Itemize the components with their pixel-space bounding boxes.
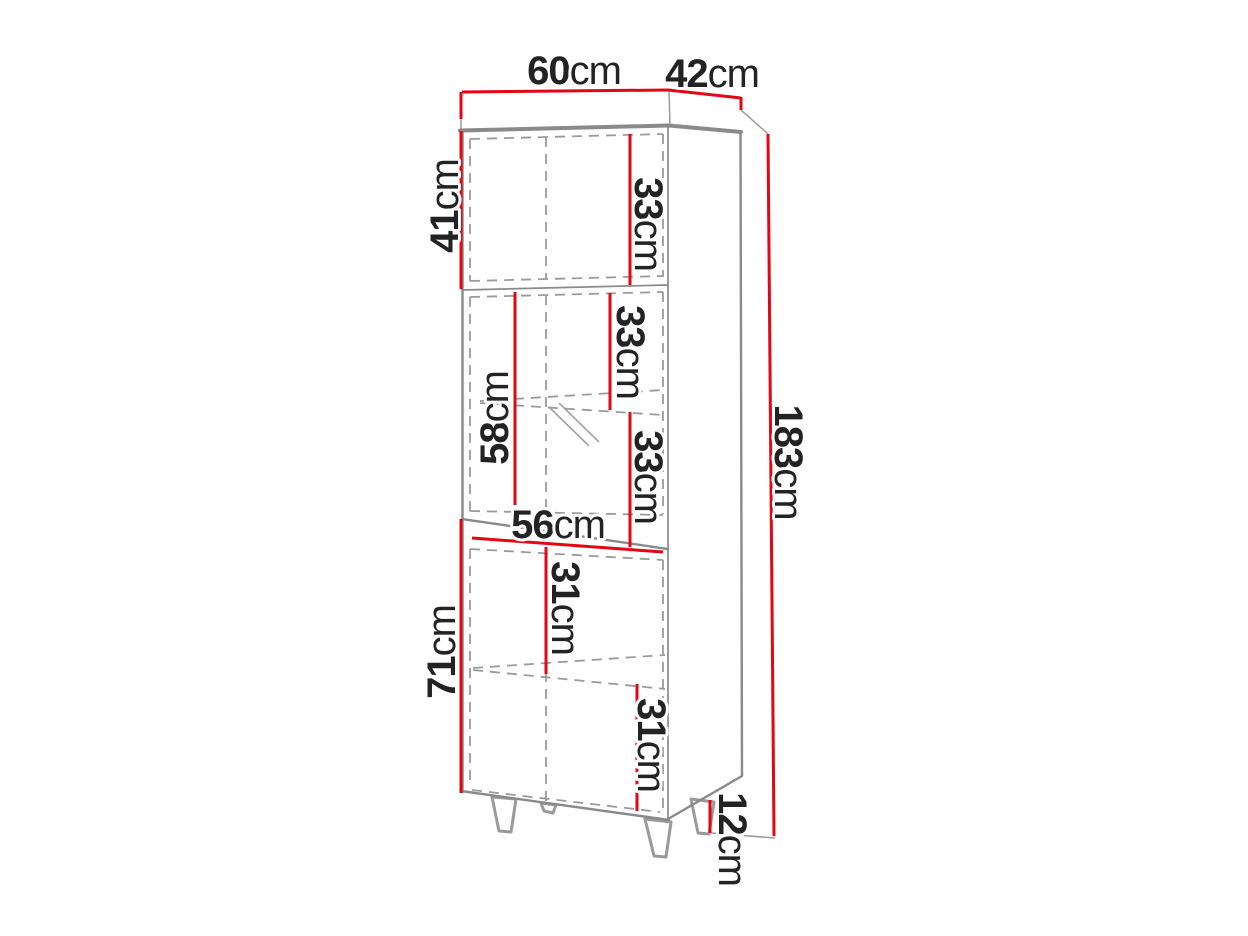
- dim-label-total-height: 183cm: [766, 404, 810, 519]
- dim-label-glass-lower-inner: 33cm: [626, 430, 670, 524]
- dim-label-glass-door-height: 58cm: [473, 371, 517, 465]
- glass-door-outline: [470, 292, 663, 297]
- dim-label-top-width: 60cm: [527, 49, 621, 93]
- dim-label-top-depth: 42cm: [665, 52, 759, 96]
- dim-label-inner-width: 56cm: [511, 503, 605, 547]
- dim-label-upper-door-height: 41cm: [423, 159, 467, 253]
- cabinet-outline: [460, 125, 742, 820]
- dim-label-glass-upper-inner: 33cm: [608, 305, 652, 399]
- dim-label-upper-inner-height: 33cm: [626, 177, 670, 271]
- dimension-labels: 60cm 42cm 41cm 33cm 33cm 58cm 33cm 56cm …: [420, 49, 810, 886]
- back-right-edge: [741, 131, 743, 776]
- top-door-outline: [470, 134, 663, 139]
- top-front-edge: [460, 126, 669, 131]
- bottom-shelf-back-edge: [473, 655, 665, 668]
- top-side-edge: [669, 126, 741, 133]
- cabinet-legs: [492, 797, 714, 857]
- upper-divider: [462, 285, 668, 290]
- cabinet-dimension-diagram: 60cm 42cm 41cm 33cm 33cm 58cm 33cm 56cm …: [0, 0, 1248, 936]
- front-right-leg: [645, 819, 671, 857]
- dim-label-lower-lower-inner: 31cm: [629, 698, 673, 792]
- diagram-canvas: 60cm 42cm 41cm 33cm 33cm 58cm 33cm 56cm …: [0, 0, 1248, 936]
- dim-label-lower-door-height: 71cm: [420, 605, 464, 699]
- dim-label-leg-height: 12cm: [710, 792, 754, 886]
- dim-label-lower-upper-inner: 31cm: [543, 561, 587, 655]
- front-left-leg: [492, 797, 516, 832]
